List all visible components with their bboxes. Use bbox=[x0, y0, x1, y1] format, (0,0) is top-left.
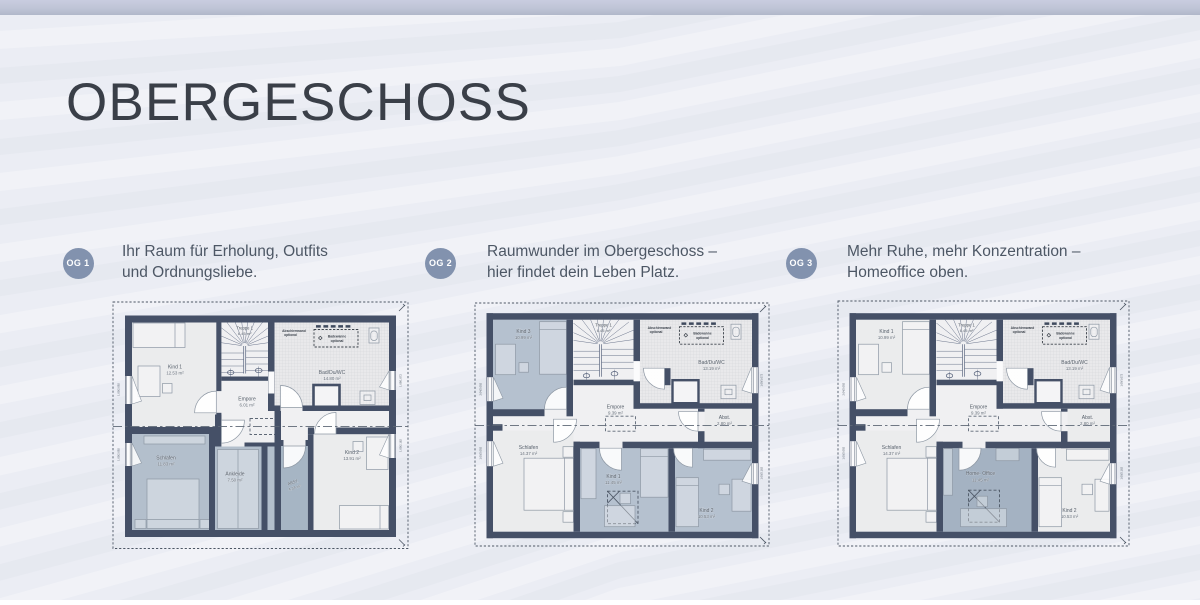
svg-text:1.00/2.182: 1.00/2.182 bbox=[1120, 466, 1124, 479]
svg-text:12.53 m²: 12.53 m² bbox=[166, 371, 184, 376]
svg-text:1.00/2.182: 1.00/2.182 bbox=[760, 466, 764, 479]
svg-text:1.00/2.092: 1.00/2.092 bbox=[842, 446, 846, 459]
svg-text:1.00/2.182: 1.00/2.182 bbox=[399, 439, 403, 452]
svg-text:1.00/2.092: 1.00/2.092 bbox=[479, 446, 483, 459]
svg-text:13.19 m²: 13.19 m² bbox=[703, 366, 721, 371]
svg-text:optional: optional bbox=[331, 339, 344, 343]
svg-text:13.19 m²: 13.19 m² bbox=[1066, 366, 1084, 371]
svg-text:11.45 m²: 11.45 m² bbox=[605, 480, 623, 485]
svg-text:10.53 m²: 10.53 m² bbox=[1061, 514, 1079, 519]
svg-text:optional: optional bbox=[1059, 336, 1072, 340]
svg-text:Badewanne: Badewanne bbox=[693, 332, 711, 336]
svg-text:1.09/1.072: 1.09/1.072 bbox=[760, 373, 764, 386]
svg-text:2.80 m²: 2.80 m² bbox=[1080, 421, 1095, 426]
svg-text:10.53 m²: 10.53 m² bbox=[698, 514, 716, 519]
svg-text:10.99 m²: 10.99 m² bbox=[878, 335, 896, 340]
svg-text:6.45 m²: 6.45 m² bbox=[597, 328, 611, 333]
svg-text:14.37 m²: 14.37 m² bbox=[520, 451, 538, 456]
svg-text:optional: optional bbox=[1013, 330, 1026, 334]
svg-text:Treppe 1: Treppe 1 bbox=[236, 326, 253, 331]
svg-text:9.39 m²: 9.39 m² bbox=[608, 411, 623, 416]
svg-text:10.99 m²: 10.99 m² bbox=[515, 335, 533, 340]
svg-text:14.37 m²: 14.37 m² bbox=[883, 451, 901, 456]
svg-text:1.09/1.072: 1.09/1.072 bbox=[1120, 373, 1124, 386]
svg-text:6.01 m²: 6.01 m² bbox=[240, 403, 255, 408]
svg-text:11.83 m²: 11.83 m² bbox=[157, 462, 175, 467]
svg-text:6.45 m²: 6.45 m² bbox=[238, 331, 252, 336]
svg-text:Badewanne: Badewanne bbox=[328, 335, 346, 339]
svg-text:9.39 m²: 9.39 m² bbox=[971, 411, 986, 416]
svg-text:11.45 m²: 11.45 m² bbox=[972, 478, 990, 483]
svg-text:13.91 m²: 13.91 m² bbox=[343, 456, 361, 461]
svg-text:14.80 m²: 14.80 m² bbox=[323, 376, 341, 381]
svg-text:Badewanne: Badewanne bbox=[1056, 332, 1074, 336]
svg-text:optional: optional bbox=[696, 336, 709, 340]
svg-text:Treppe 1: Treppe 1 bbox=[958, 323, 975, 328]
svg-text:optional: optional bbox=[284, 333, 297, 337]
svg-text:2.04/2.092: 2.04/2.092 bbox=[842, 382, 846, 395]
svg-text:2.80 m²: 2.80 m² bbox=[717, 421, 732, 426]
svg-text:optional: optional bbox=[650, 330, 663, 334]
svg-text:6.45 m²: 6.45 m² bbox=[960, 328, 974, 333]
svg-text:7.50 m²: 7.50 m² bbox=[228, 478, 243, 483]
svg-text:Treppe 1: Treppe 1 bbox=[595, 323, 612, 328]
svg-text:1.00/2.092: 1.00/2.092 bbox=[117, 383, 121, 396]
svg-text:2.04/2.092: 2.04/2.092 bbox=[479, 382, 483, 395]
svg-text:Home- Office: Home- Office bbox=[966, 471, 996, 477]
svg-text:1.00/2.092: 1.00/2.092 bbox=[117, 448, 121, 461]
svg-text:1.09/1.072: 1.09/1.072 bbox=[399, 374, 403, 387]
